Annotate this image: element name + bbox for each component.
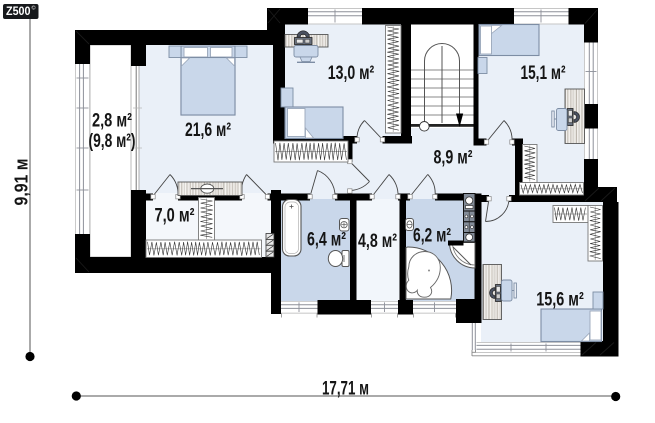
svg-text:6,4 м²: 6,4 м² [307, 230, 346, 251]
svg-text:13,0 м²: 13,0 м² [328, 63, 375, 84]
svg-text:Z500: Z500 [6, 6, 31, 18]
svg-text:7,0 м²: 7,0 м² [155, 206, 195, 227]
svg-text:2,8 м²: 2,8 м² [92, 111, 132, 132]
svg-text:15,1 м²: 15,1 м² [521, 63, 566, 84]
svg-text:9,91 м: 9,91 м [12, 159, 32, 206]
svg-text:©: © [32, 5, 36, 12]
svg-text:21,6 м²: 21,6 м² [185, 120, 231, 141]
svg-text:17,71 м: 17,71 м [322, 378, 369, 399]
svg-text:(9,8 м²): (9,8 м²) [89, 131, 136, 152]
svg-text:6,2 м²: 6,2 м² [413, 226, 451, 247]
svg-text:8,9 м²: 8,9 м² [434, 148, 473, 169]
svg-text:15,6 м²: 15,6 м² [536, 290, 584, 311]
svg-text:4,8 м²: 4,8 м² [358, 231, 397, 252]
